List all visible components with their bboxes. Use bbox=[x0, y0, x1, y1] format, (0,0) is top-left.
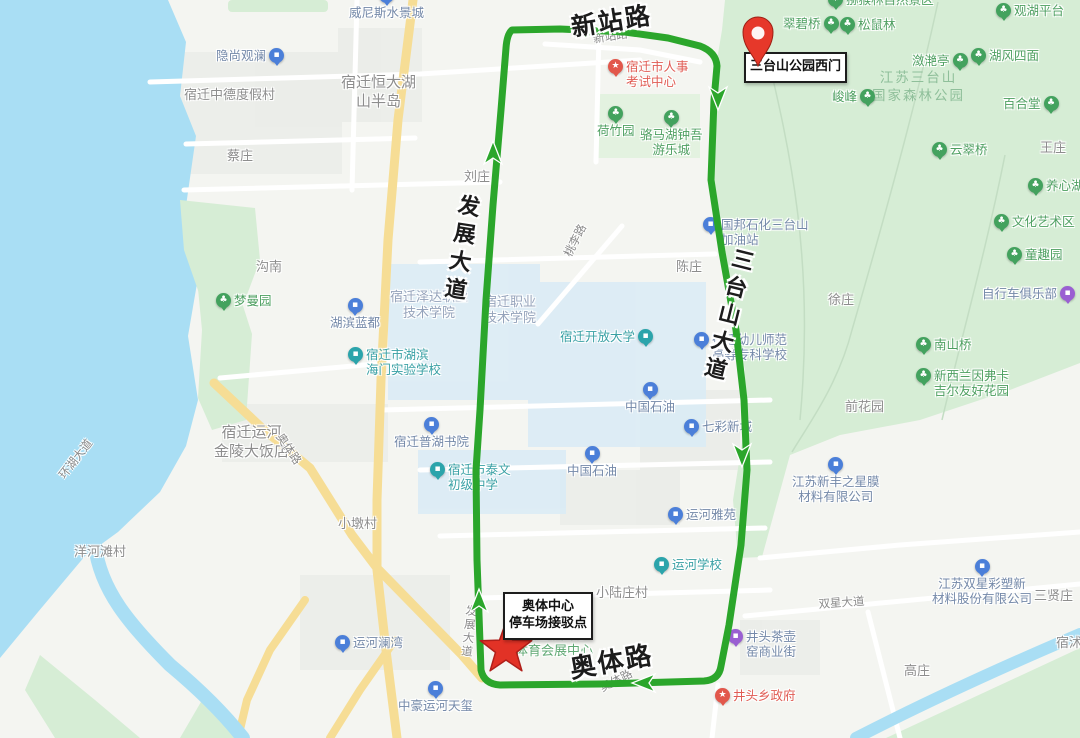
poi-label[interactable]: ★井头乡政府 bbox=[715, 688, 796, 703]
park-poi-icon[interactable]: ♣ bbox=[916, 337, 931, 352]
park-poi-icon[interactable]: ♣ bbox=[860, 89, 875, 104]
poi-label[interactable]: 自行车俱乐部▪ bbox=[982, 286, 1075, 301]
park-poi-icon[interactable]: ♣ bbox=[216, 293, 231, 308]
area-label: 洋河滩村 bbox=[74, 545, 126, 561]
poi-label[interactable]: ♣荷竹园 bbox=[597, 106, 635, 138]
blue-poi-icon[interactable]: ▪ bbox=[828, 457, 843, 472]
poi-label[interactable]: ♣云翠桥 bbox=[932, 142, 988, 157]
road-label: 桃李路 bbox=[560, 221, 590, 259]
poi-label-text: 隐尚观澜 bbox=[216, 48, 266, 63]
park-poi-icon[interactable]: ♣ bbox=[840, 17, 855, 32]
park-poi-icon[interactable]: ♣ bbox=[664, 110, 679, 125]
blue-poi-icon[interactable]: ▪ bbox=[379, 0, 394, 3]
poi-label-text: 宿迁市泰文初级中学 bbox=[448, 462, 511, 492]
poi-label-text: 运河学校 bbox=[672, 557, 722, 572]
blue-poi-icon[interactable]: ▪ bbox=[643, 382, 658, 397]
red-poi-icon[interactable]: ★ bbox=[715, 688, 730, 703]
poi-label[interactable]: ♣松鼠林 bbox=[840, 17, 896, 32]
road-label: 双星大道 bbox=[818, 593, 865, 612]
poi-label[interactable]: ▪宿迁普湖书院 bbox=[394, 417, 469, 449]
poi-label[interactable]: ▪宿迁市泰文初级中学 bbox=[430, 462, 511, 492]
poi-label-text: 潋滟亭 bbox=[912, 53, 950, 68]
park-poi-icon[interactable]: ♣ bbox=[916, 368, 931, 383]
poi-label[interactable]: ▪中国石油 bbox=[625, 382, 675, 414]
poi-label-text: 骆马湖钟吾游乐城 bbox=[640, 127, 703, 157]
poi-label[interactable]: 潋滟亭♣ bbox=[912, 53, 968, 68]
poi-label[interactable]: ▪运河澜湾 bbox=[335, 635, 403, 650]
poi-label-text: 井头乡政府 bbox=[733, 688, 796, 703]
poi-label[interactable]: ▪国邦石化三台山加油站 bbox=[703, 217, 809, 247]
poi-label[interactable]: ▪运河雅苑 bbox=[668, 507, 736, 522]
poi-label[interactable]: ♣新西兰因弗卡吉尔友好花园 bbox=[916, 368, 1009, 398]
poi-label[interactable]: ▪七彩新城 bbox=[684, 419, 752, 434]
star-callout[interactable]: 奥体中心 停车场接驳点 bbox=[503, 592, 593, 640]
destination-pin-marker[interactable] bbox=[740, 14, 776, 68]
area-label: 宿迁中德度假村 bbox=[184, 88, 275, 104]
area-label: 三贤庄 bbox=[1034, 589, 1073, 605]
poi-label-text: 井头茶壶窑商业街 bbox=[746, 629, 796, 659]
poi-label[interactable]: 隐尚观澜▪ bbox=[216, 48, 284, 63]
area-label: 宿沭河 bbox=[1056, 636, 1080, 652]
park-poi-icon[interactable]: ♣ bbox=[932, 142, 947, 157]
poi-label[interactable]: ♣观湖平台 bbox=[996, 3, 1064, 18]
poi-label[interactable]: ♣梦曼园 bbox=[216, 293, 272, 308]
poi-label[interactable]: ▪威尼斯水景城 bbox=[349, 0, 424, 20]
poi-label[interactable]: ▪湖滨蓝都 bbox=[330, 298, 380, 330]
poi-label-text: 运河澜湾 bbox=[353, 635, 403, 650]
area-label: 沟南 bbox=[256, 260, 282, 276]
blue-poi-icon[interactable]: ▪ bbox=[668, 507, 683, 522]
poi-label-text: 国邦石化三台山加油站 bbox=[721, 217, 809, 247]
blue-poi-icon[interactable]: ▪ bbox=[684, 419, 699, 434]
poi-label[interactable]: ♣猕猴林自然景区 bbox=[828, 0, 934, 7]
park-poi-icon[interactable]: ♣ bbox=[994, 214, 1009, 229]
poi-label-text: 宿迁开放大学 bbox=[560, 329, 635, 344]
blue-poi-icon[interactable]: ▪ bbox=[703, 217, 718, 232]
poi-label-text: 宿迁市人事考试中心 bbox=[626, 59, 689, 89]
poi-label-text: 梦曼园 bbox=[234, 293, 272, 308]
park-poi-icon[interactable]: ♣ bbox=[824, 16, 839, 31]
poi-label-text: 宿迁市湖滨海门实验学校 bbox=[366, 347, 441, 377]
area-label: 徐庄 bbox=[828, 293, 854, 309]
area-label: 宿迁恒大湖山半岛 bbox=[341, 73, 416, 111]
teal-poi-icon[interactable]: ▪ bbox=[654, 557, 669, 572]
poi-label-text: 猕猴林自然景区 bbox=[846, 0, 934, 7]
star-callout-line1: 奥体中心 bbox=[509, 599, 587, 616]
blue-poi-icon[interactable]: ▪ bbox=[585, 446, 600, 461]
teal-poi-icon[interactable]: ▪ bbox=[430, 462, 445, 477]
poi-label[interactable]: ▪江苏新丰之星膜材料有限公司 bbox=[792, 457, 880, 504]
poi-label-text: 自行车俱乐部 bbox=[982, 286, 1057, 301]
poi-label[interactable]: ★宿迁市人事考试中心 bbox=[608, 59, 689, 89]
blue-poi-icon[interactable]: ▪ bbox=[335, 635, 350, 650]
poi-label-text: 翠碧桥 bbox=[783, 16, 821, 31]
area-label: 小墩村 bbox=[338, 517, 377, 533]
poi-label[interactable]: ♣湖风四面 bbox=[971, 48, 1039, 63]
star-callout-line2: 停车场接驳点 bbox=[509, 616, 587, 633]
park-poi-icon[interactable]: ♣ bbox=[953, 53, 968, 68]
poi-label-text: 养心湖 bbox=[1046, 178, 1080, 193]
blue-poi-icon[interactable]: ▪ bbox=[348, 298, 363, 313]
poi-label-text: 运河雅苑 bbox=[686, 507, 736, 522]
blue-poi-icon[interactable]: ▪ bbox=[428, 681, 443, 696]
poi-label-text: 松鼠林 bbox=[858, 17, 896, 32]
poi-label[interactable]: 宿迁开放大学▪ bbox=[560, 329, 653, 344]
park-poi-icon[interactable]: ♣ bbox=[971, 48, 986, 63]
blue-poi-icon[interactable]: ▪ bbox=[269, 48, 284, 63]
poi-label[interactable]: ▪中国石油 bbox=[567, 446, 617, 478]
purple-poi-icon[interactable]: ▪ bbox=[728, 629, 743, 644]
red-poi-icon[interactable]: ★ bbox=[608, 59, 623, 74]
poi-label-text: 南山桥 bbox=[934, 337, 972, 352]
park-poi-icon[interactable]: ♣ bbox=[1028, 178, 1043, 193]
park-poi-icon[interactable]: ♣ bbox=[608, 106, 623, 121]
teal-poi-icon[interactable]: ▪ bbox=[638, 329, 653, 344]
area-label: 王庄 bbox=[1040, 141, 1066, 157]
poi-label[interactable]: ♣南山桥 bbox=[916, 337, 972, 352]
area-label: 刘庄 bbox=[464, 170, 490, 186]
poi-label-text: 童趣园 bbox=[1025, 247, 1063, 262]
road-label: 发展大道 bbox=[458, 604, 480, 659]
poi-label-text: 新西兰因弗卡吉尔友好花园 bbox=[934, 368, 1009, 398]
poi-label-text: 云翠桥 bbox=[950, 142, 988, 157]
park-poi-icon[interactable]: ♣ bbox=[828, 0, 843, 7]
poi-label[interactable]: ▪井头茶壶窑商业街 bbox=[728, 629, 796, 659]
area-label: 宿迁职业技术学院 bbox=[484, 295, 536, 328]
park-poi-icon[interactable]: ♣ bbox=[1044, 96, 1059, 111]
area-label: 陈庄 bbox=[676, 260, 702, 276]
poi-label-text: 江苏双星彩塑新材料股份有限公司 bbox=[932, 576, 1032, 606]
poi-label[interactable]: ▪宿迁市湖滨海门实验学校 bbox=[348, 347, 441, 377]
poi-label[interactable]: 百合堂♣ bbox=[1003, 96, 1059, 111]
park-poi-icon[interactable]: ♣ bbox=[996, 3, 1011, 18]
poi-label-text: 七彩新城 bbox=[702, 419, 752, 434]
poi-label[interactable]: ▪江苏双星彩塑新材料股份有限公司 bbox=[932, 559, 1032, 606]
area-label: 小陆庄村 bbox=[596, 586, 648, 602]
poi-label-text: 江苏新丰之星膜材料有限公司 bbox=[792, 474, 880, 504]
purple-poi-icon[interactable]: ▪ bbox=[1060, 286, 1075, 301]
poi-label[interactable]: ▪中豪运河天玺 bbox=[398, 681, 473, 713]
poi-label[interactable]: 峻峰♣ bbox=[832, 89, 875, 104]
blue-poi-icon[interactable]: ▪ bbox=[424, 417, 439, 432]
area-label: 高庄 bbox=[904, 664, 930, 680]
poi-label[interactable]: ♣养心湖 bbox=[1028, 178, 1080, 193]
teal-poi-icon[interactable]: ▪ bbox=[348, 347, 363, 362]
park-poi-icon[interactable]: ♣ bbox=[1007, 247, 1022, 262]
poi-label-text: 湖风四面 bbox=[989, 48, 1039, 63]
blue-poi-icon[interactable]: ▪ bbox=[975, 559, 990, 574]
poi-label[interactable]: ♣童趣园 bbox=[1007, 247, 1063, 262]
area-label: 蔡庄 bbox=[227, 149, 253, 165]
poi-label-text: 文化艺术区 bbox=[1012, 214, 1075, 229]
poi-label[interactable]: ♣骆马湖钟吾游乐城 bbox=[640, 110, 703, 157]
map-canvas[interactable]: ♣猕猴林自然景区翠碧桥♣♣松鼠林♣观湖平台潋滟亭♣♣湖风四面峻峰♣百合堂♣♣云翠… bbox=[0, 0, 1080, 738]
road-label: 环湖大道 bbox=[55, 436, 96, 482]
area-label: 前花园 bbox=[845, 400, 884, 416]
poi-label[interactable]: 翠碧桥♣ bbox=[783, 16, 839, 31]
poi-label[interactable]: ♣文化艺术区 bbox=[994, 214, 1075, 229]
poi-label-text: 峻峰 bbox=[832, 89, 857, 104]
poi-label-text: 百合堂 bbox=[1003, 96, 1041, 111]
poi-label-text: 观湖平台 bbox=[1014, 3, 1064, 18]
poi-label[interactable]: ▪运河学校 bbox=[654, 557, 722, 572]
